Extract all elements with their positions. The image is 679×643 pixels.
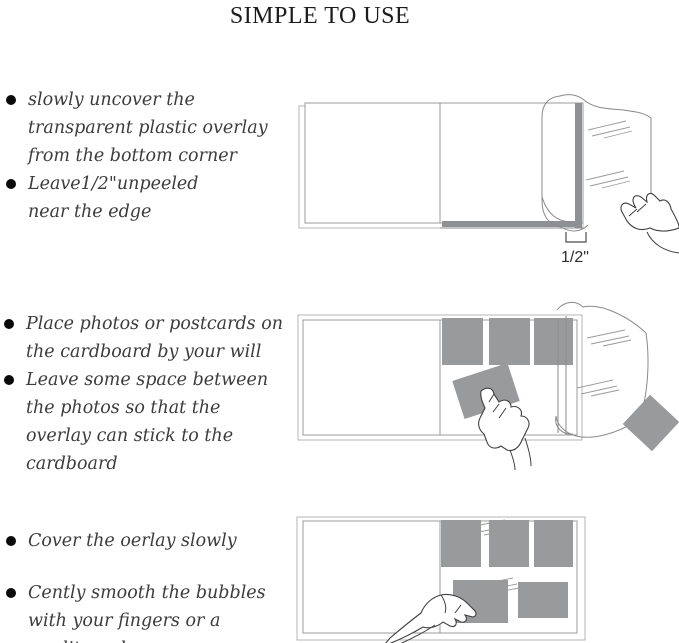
bullet-dot (4, 319, 14, 329)
bullet-dot (6, 536, 16, 546)
hand-icon (621, 194, 679, 253)
photo-placeholder (489, 520, 529, 567)
photo-placeholder (442, 318, 483, 365)
album-right-page (440, 103, 583, 223)
step1-bullet-1-label: slowly uncover the transparent plastic o… (28, 86, 286, 170)
photo-placeholder (441, 520, 481, 567)
step2-text: Place photos or postcards on the cardboa… (2, 310, 288, 478)
page-title: SIMPLE TO USE (0, 3, 640, 30)
step3-bullet-1-label: Cover the oerlay slowly (28, 527, 286, 555)
photo-loose (623, 395, 679, 452)
adhesive-strip-right (575, 103, 582, 228)
photo-placeholder (489, 318, 530, 365)
photo-placeholder (518, 582, 568, 618)
step3-bullet-2: Cently smooth the bubbles with your fing… (4, 579, 290, 643)
sheet-shine-lines (586, 121, 632, 188)
step1-bullet-2-label: Leave1/2"unpeeled near the edge (28, 170, 242, 226)
bullet-dot (6, 588, 16, 598)
step1-bullet-2: Leave1/2"unpeeled near the edge (4, 170, 290, 226)
illustration-peel-overlay: 1/2" (285, 85, 679, 275)
photo-placeholder (534, 318, 573, 365)
adhesive-strip-bottom (442, 221, 582, 227)
album-left-page (303, 320, 440, 435)
step1-bullet-1: slowly uncover the transparent plastic o… (4, 86, 290, 170)
step2-bullet-2-label: Leave some space between the photos so t… (26, 366, 284, 478)
illustration-smooth-overlay (285, 505, 679, 643)
illustration-place-photos (285, 298, 679, 470)
step1-text: slowly uncover the transparent plastic o… (4, 86, 290, 226)
measurement-bracket (566, 232, 586, 242)
bullet-dot (6, 95, 16, 105)
bullet-dot (4, 375, 14, 385)
measurement-label: 1/2" (561, 249, 589, 266)
sheet-shine-lines (577, 330, 631, 396)
photo-placeholder (534, 520, 573, 567)
album-left-page (305, 103, 440, 223)
step2-bullet-2: Leave some space between the photos so t… (2, 366, 288, 478)
step3-bullet-1: Cover the oerlay slowly (4, 527, 290, 555)
step3-bullet-2-label: Cently smooth the bubbles with your fing… (28, 579, 276, 643)
bullet-dot (6, 179, 16, 189)
instruction-sheet: SIMPLE TO USE slowly uncover the transpa… (0, 0, 679, 643)
step2-bullet-1-label: Place photos or postcards on the cardboa… (26, 310, 284, 366)
step2-bullet-1: Place photos or postcards on the cardboa… (2, 310, 288, 366)
step3-text: Cover the oerlay slowly Cently smooth th… (4, 527, 290, 643)
